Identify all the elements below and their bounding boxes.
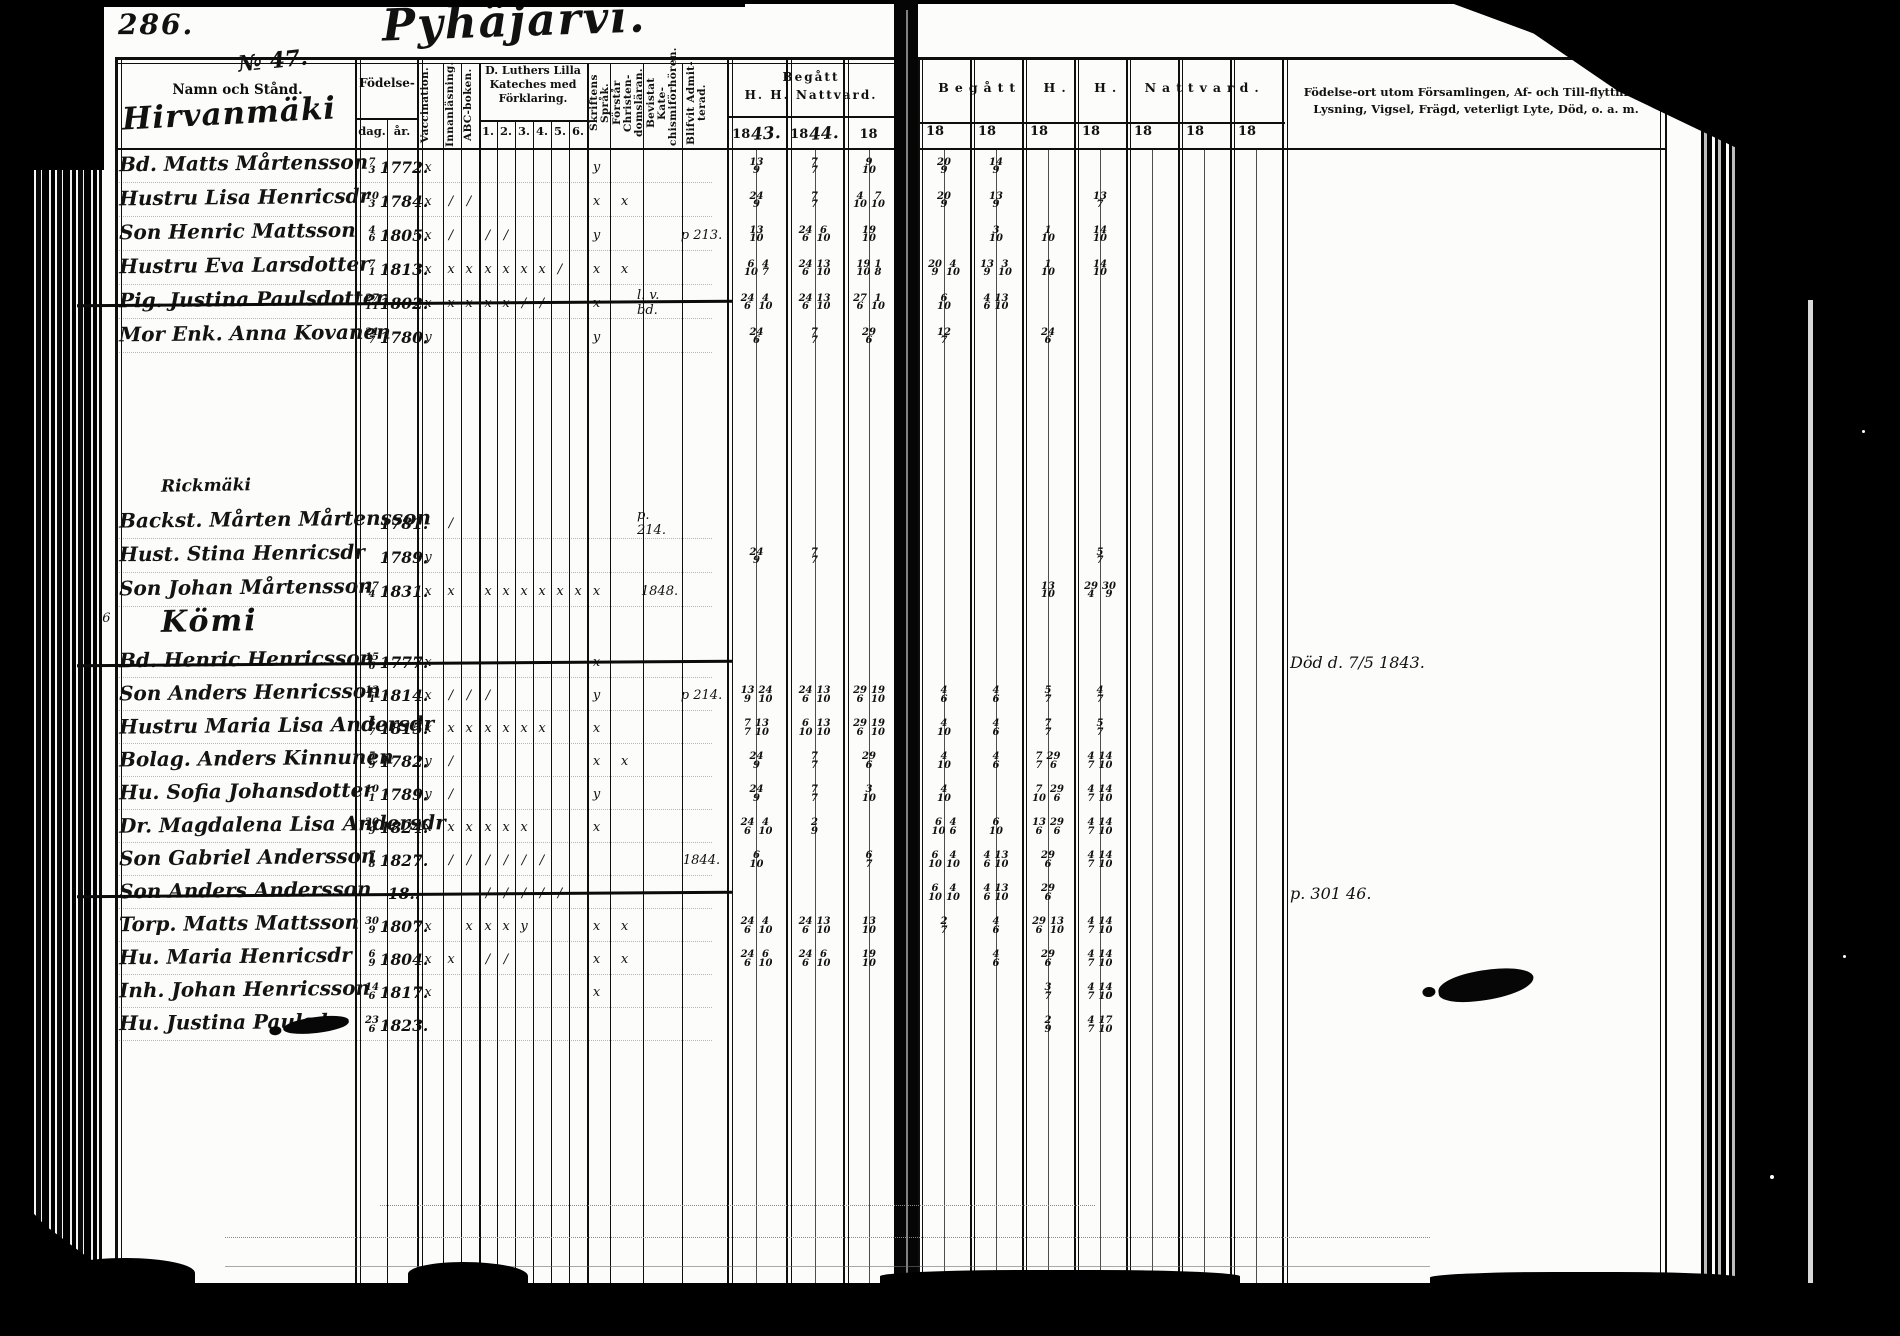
- scan-corner-top-left: [0, 0, 104, 170]
- person-name: Hust. Stina Henricsdr: [119, 540, 365, 567]
- right-year-col-5: 18: [1126, 124, 1178, 139]
- scan-border-right-texture: [1698, 0, 1738, 1336]
- column-header-reading: Innanläsning.: [445, 63, 461, 147]
- dust-speck: [1862, 430, 1865, 433]
- communion-year-blank: 18: [843, 120, 895, 148]
- dust-speck: [1843, 955, 1846, 958]
- table-row: Mor Enk. Anna Kovanen2171780.yy246772961…: [115, 320, 1670, 354]
- scan-border-right: [1735, 0, 1900, 1336]
- section-label: Rickmäki: [115, 476, 1670, 506]
- person-name: Inh. Johan Henricsson: [119, 976, 370, 1003]
- empty-gap: [115, 354, 1670, 476]
- column-header-attended-examinations: Bevistat Kate- chismiförhören.: [646, 60, 680, 146]
- scan-border-left: [0, 0, 34, 1336]
- table-row: Dr. Magdalena Lisa Andersdr2091824.xxxxx…: [115, 811, 1670, 844]
- table-row: Inh. Johan Henricsson1461817.xx37471410: [115, 976, 1670, 1009]
- page-number: 286.: [118, 8, 194, 41]
- scan-scratch-highlight: [1808, 300, 1813, 1336]
- right-year-col-2: 18: [970, 124, 1022, 139]
- right-year-col-7: 18: [1230, 124, 1282, 139]
- person-name: Pig. Justina Paulsdotter: [119, 286, 386, 313]
- communion-year-1843: 1843.: [727, 120, 786, 148]
- table-row: Hu. Sofia Johansdotter1011789.y/y2497731…: [115, 778, 1670, 811]
- person-name: Bd. Henric Henricsson: [119, 646, 374, 673]
- column-header-remarks: Födelse-ort utom Församlingen, Af- och T…: [1292, 84, 1660, 118]
- person-name: Mor Enk. Anna Kovanen: [119, 320, 391, 347]
- scanned-church-record-page: 286. Pyhäjärvi. Namn och Stånd. № 47. Hi…: [0, 0, 1900, 1336]
- communion-year-1844: 1844.: [786, 120, 843, 148]
- column-header-vaccination: Vaccination.: [420, 63, 443, 147]
- table-row: Bd. Matts Mårtensson731772.xy13977910209…: [115, 150, 1670, 184]
- table-row: Son Gabriel Andersson781827.//////1844.6…: [115, 844, 1670, 877]
- column-header-abc-book: ABC-boken.: [463, 63, 479, 147]
- table-row: Pig. Justina Paulsdotter27111802.xxxxxx/…: [115, 286, 1670, 320]
- person-name: Son Anders Henricsson: [119, 679, 381, 706]
- table-row: Son Anders Henricsson1311814.x//y/p 214.…: [115, 679, 1670, 712]
- column-header-understands-doctrine: Förstår Christen- domsläran.: [612, 60, 641, 146]
- person-name: Son Anders Andersson: [119, 877, 372, 904]
- catechism-col-5: 5.: [551, 124, 569, 138]
- section-label: Kömi14736: [115, 608, 1670, 646]
- person-name: Hu. Sofia Johansdotter: [119, 778, 374, 805]
- person-name: Bolag. Anders Kinnunen: [119, 745, 394, 772]
- scan-border-bottom: [0, 1283, 1900, 1336]
- scan-border-left-texture: [30, 0, 102, 1292]
- right-year-col-6: 18: [1178, 124, 1230, 139]
- book-fold-highlight: [906, 10, 908, 1276]
- scratch-line: [225, 1266, 1430, 1267]
- person-name: Son Henric Mattsson: [119, 218, 356, 244]
- catechism-col-4: 4.: [533, 124, 551, 138]
- scratch-line: [380, 1205, 1095, 1206]
- remark-note: Död d. 7/5 1843.: [1290, 653, 1425, 672]
- person-name: Torp. Matts Mattsson: [119, 910, 359, 937]
- catechism-col-3: 3.: [515, 124, 533, 138]
- column-header-catechism: D. Luthers Lilla Kateches med Förklaring…: [481, 64, 585, 106]
- scan-border-top: [0, 0, 745, 7]
- table-row: Torp. Matts Mattsson3091807.xxxxxxy24641…: [115, 910, 1670, 943]
- table-row: Hustru Eva Larsdotter711813.xxxxxxxxx/61…: [115, 252, 1670, 286]
- dust-speck: [1770, 1175, 1774, 1179]
- person-name: Hustru Eva Larsdotter: [119, 252, 370, 279]
- column-header-birth-day: dag.: [357, 124, 387, 138]
- table-row: Hu. Maria Henricsdr691804.xxxx//24661024…: [115, 943, 1670, 976]
- column-header-birth-year: år.: [387, 124, 417, 138]
- catechism-col-6: 6.: [569, 124, 587, 138]
- remark-note: p. 301 46.: [1290, 884, 1371, 903]
- right-year-col-4: 18: [1074, 124, 1126, 139]
- table-row: Backst. Mårten Mårtensson1781./p. 214.: [115, 506, 1670, 540]
- column-header-admitted: Blifvit Admit- terad.: [686, 60, 724, 146]
- table-row: Son Johan Mårtensson2741831.xxxxxxxxx184…: [115, 574, 1670, 608]
- person-name: Bd. Matts Mårtensson: [119, 150, 368, 177]
- table-row: Hustru Maria Lisa Andersdr671815.xxxxxxx…: [115, 712, 1670, 745]
- table-row: Son Anders Andersson18../////61041046131…: [115, 877, 1670, 910]
- person-name: Hu. Maria Henricsdr: [119, 943, 352, 969]
- column-header-birth: Födelse-: [357, 76, 417, 90]
- record-table: Bd. Matts Mårtensson731772.xy13977910209…: [115, 150, 1670, 1042]
- catechism-col-1: 1.: [479, 124, 497, 138]
- table-row: Hust. Stina Henricsdr1789.y2497757: [115, 540, 1670, 574]
- table-row: Bd. Henric Henricsson1561777.xxDöd d. 7/…: [115, 646, 1670, 679]
- table-row: Hu. Justina Paulsdr2361823.29471710: [115, 1009, 1670, 1042]
- person-name: Son Johan Mårtensson: [119, 574, 373, 601]
- table-row: Son Henric Mattsson461805.x/y//p 213.131…: [115, 218, 1670, 252]
- scratch-line: [225, 1237, 1430, 1238]
- table-row: Bolag. Anders Kinnunen591782.y/xx2497729…: [115, 745, 1670, 778]
- right-year-col-1: 18: [918, 124, 970, 139]
- person-name: Hustru Lisa Henricsdr: [119, 184, 370, 211]
- catechism-col-2: 2.: [497, 124, 515, 138]
- column-header-scripture-language: Skriftens Språk.: [589, 60, 609, 146]
- person-name: Son Gabriel Andersson: [119, 844, 376, 871]
- right-year-col-3: 18: [1022, 124, 1074, 139]
- table-row: Hustru Lisa Henricsdr1031784.x//xx249774…: [115, 184, 1670, 218]
- column-header-communion-left: Begått H. H. Nattvard.: [727, 68, 895, 104]
